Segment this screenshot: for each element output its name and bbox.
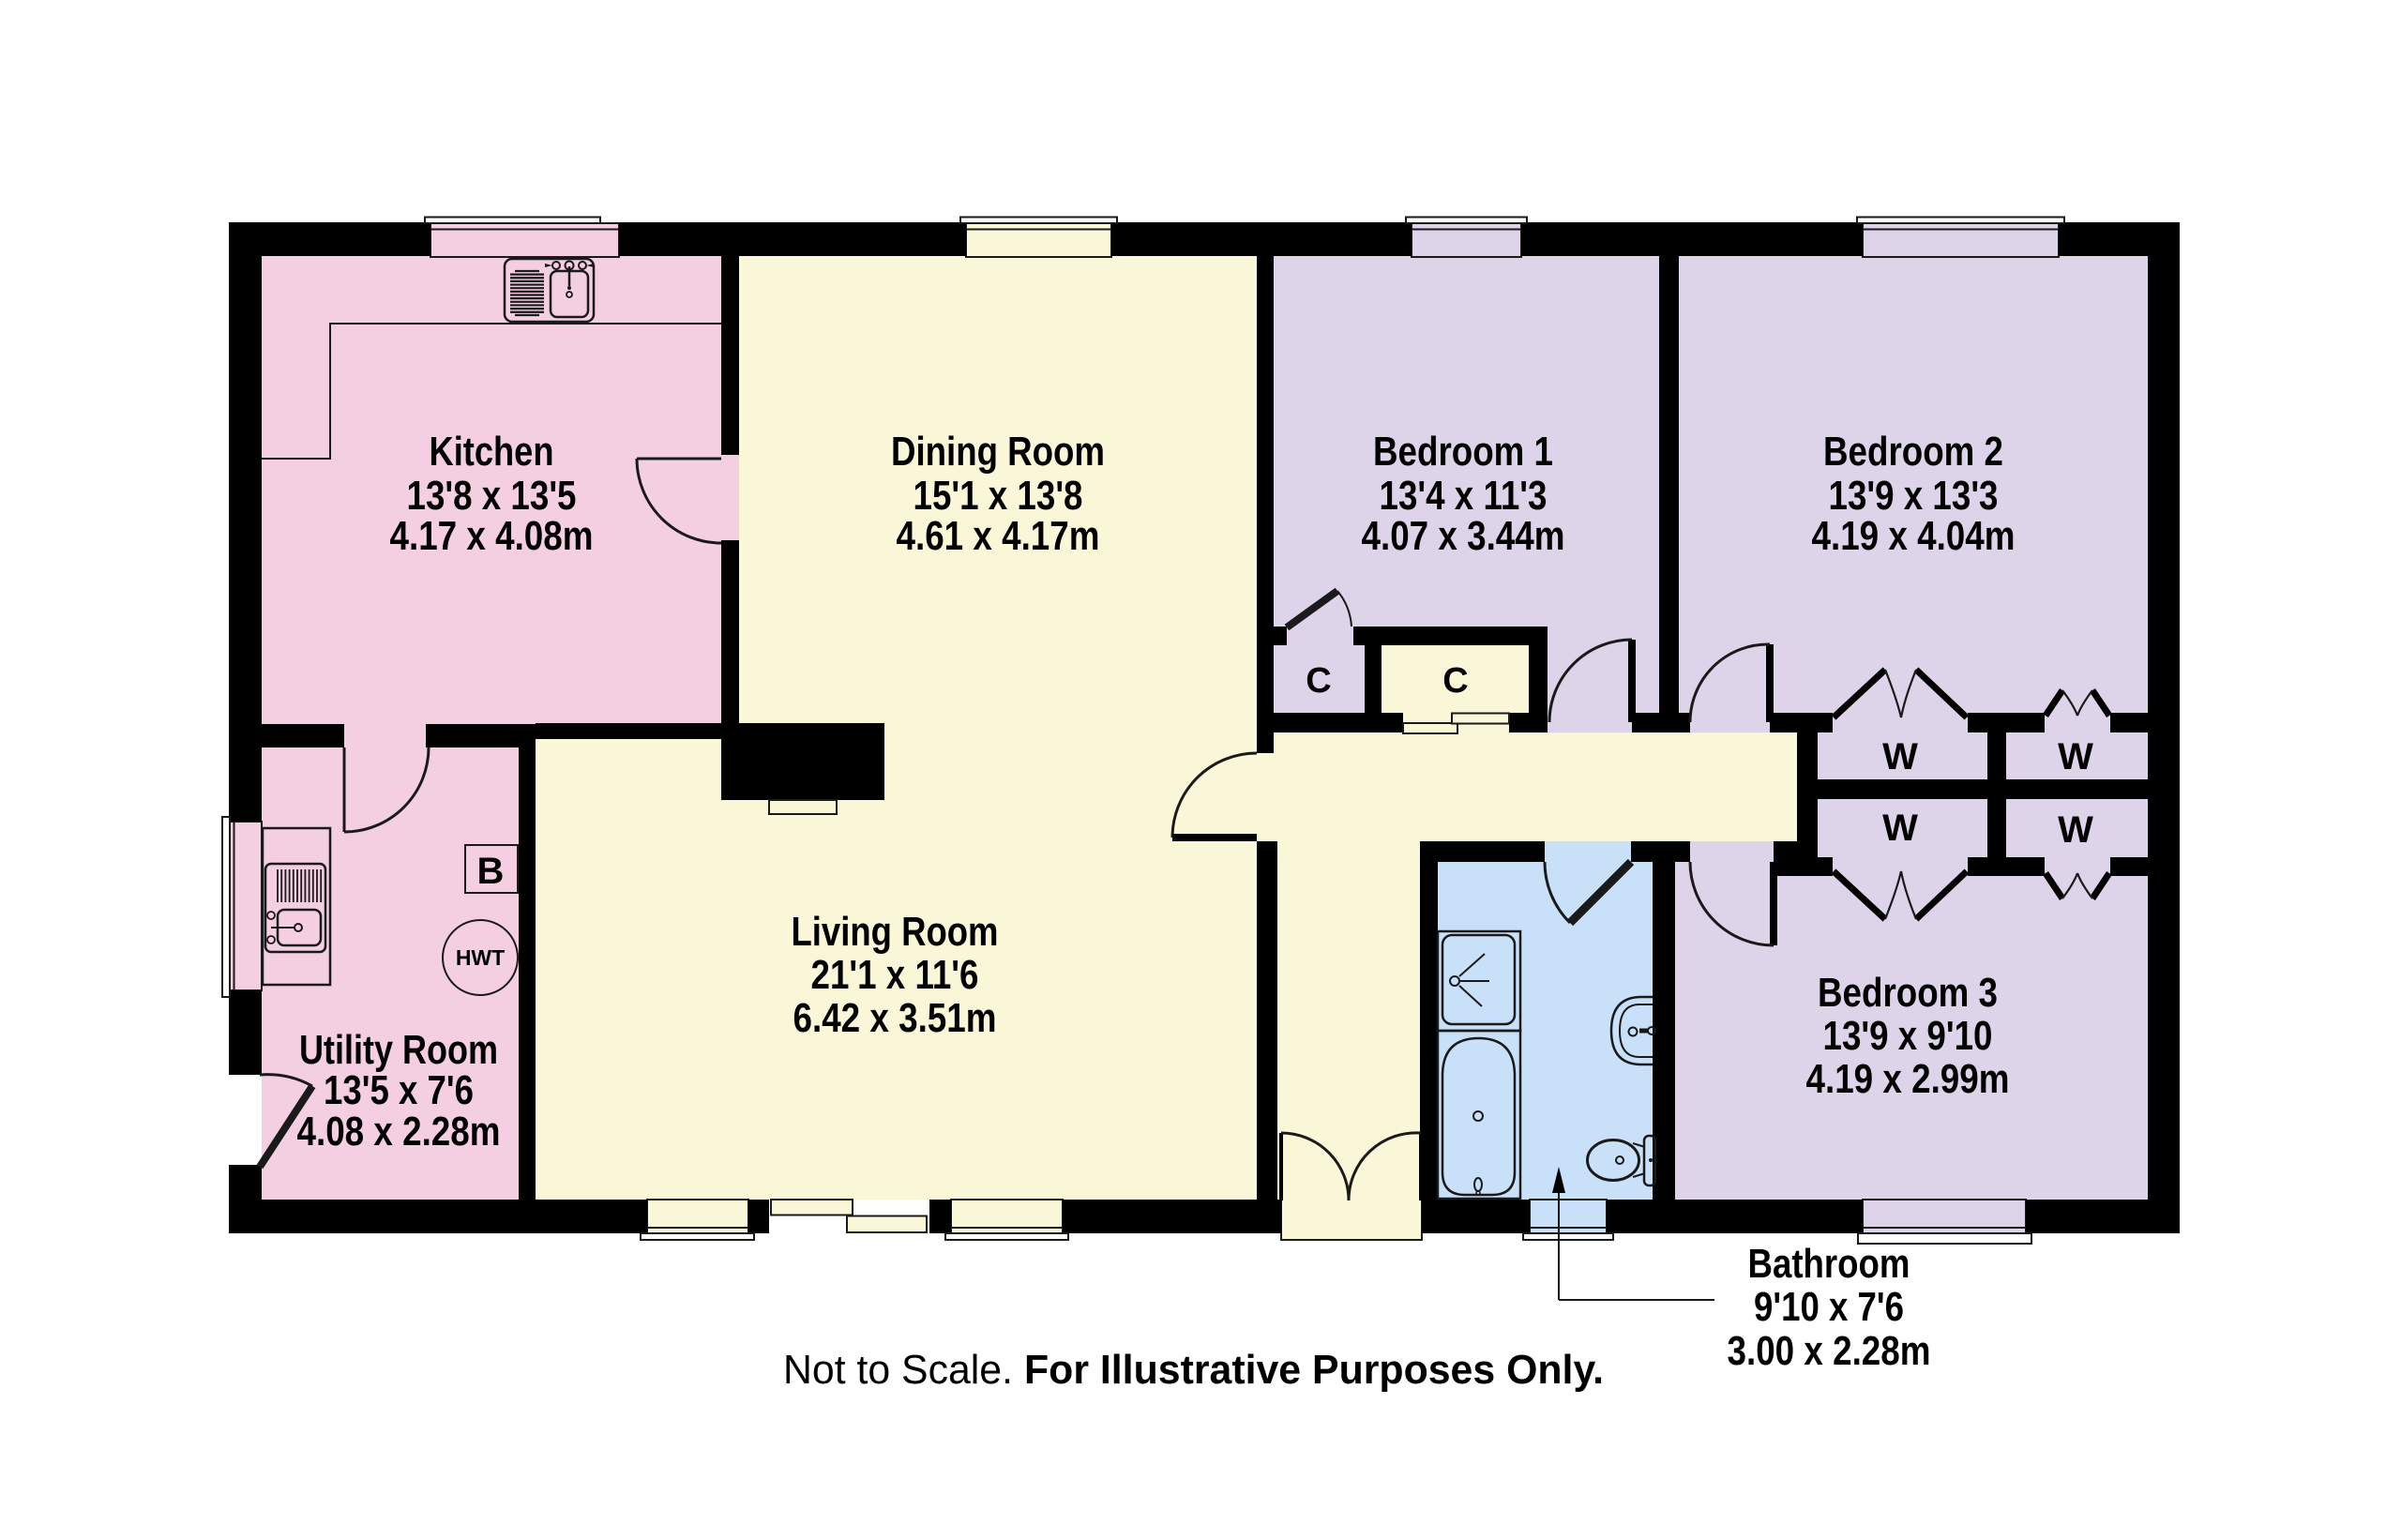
svg-text:W: W	[1882, 736, 1918, 778]
svg-text:9'10 x 7'6: 9'10 x 7'6	[1754, 1284, 1904, 1330]
svg-text:13'9 x 13'3: 13'9 x 13'3	[1829, 473, 1999, 519]
svg-text:Not to Scale.For Illustrative: Not to Scale.For Illustrative Purposes O…	[783, 1347, 1604, 1393]
svg-text:4.19 x 4.04m: 4.19 x 4.04m	[1812, 513, 2016, 559]
svg-text:HWT: HWT	[456, 945, 505, 970]
svg-text:Utility Room: Utility Room	[299, 1027, 498, 1073]
svg-text:21'1 x 11'6: 21'1 x 11'6	[811, 952, 979, 998]
svg-text:C: C	[1442, 661, 1468, 701]
svg-text:C: C	[1306, 661, 1331, 701]
svg-text:Bathroom: Bathroom	[1748, 1241, 1910, 1287]
svg-text:4.08 x 2.28m: 4.08 x 2.28m	[297, 1109, 501, 1155]
svg-text:13'4 x 11'3: 13'4 x 11'3	[1380, 473, 1548, 519]
svg-text:3.00 x 2.28m: 3.00 x 2.28m	[1728, 1328, 1931, 1374]
svg-text:Bedroom 3: Bedroom 3	[1818, 970, 1998, 1016]
svg-text:4.61 x 4.17m: 4.61 x 4.17m	[897, 513, 1100, 559]
svg-text:Kitchen: Kitchen	[430, 429, 554, 475]
svg-text:13'5 x 7'6: 13'5 x 7'6	[324, 1067, 474, 1113]
svg-text:13'8 x 13'5: 13'8 x 13'5	[407, 473, 577, 519]
svg-text:6.42 x 3.51m: 6.42 x 3.51m	[793, 995, 997, 1041]
svg-text:4.17 x 4.08m: 4.17 x 4.08m	[390, 513, 594, 559]
svg-text:Bedroom 2: Bedroom 2	[1823, 429, 2003, 475]
svg-text:W: W	[2058, 809, 2093, 851]
svg-text:13'9 x 9'10: 13'9 x 9'10	[1823, 1013, 1993, 1059]
svg-text:4.19 x 2.99m: 4.19 x 2.99m	[1806, 1056, 2010, 1102]
svg-text:B: B	[477, 851, 505, 892]
svg-text:W: W	[2058, 736, 2093, 778]
svg-text:Dining Room: Dining Room	[891, 429, 1105, 475]
svg-text:Bedroom 1: Bedroom 1	[1373, 429, 1553, 475]
svg-text:W: W	[1882, 808, 1918, 849]
svg-text:4.07 x 3.44m: 4.07 x 3.44m	[1362, 513, 1565, 559]
svg-text:15'1 x 13'8: 15'1 x 13'8	[914, 473, 1083, 519]
svg-text:Living Room: Living Room	[792, 909, 999, 955]
